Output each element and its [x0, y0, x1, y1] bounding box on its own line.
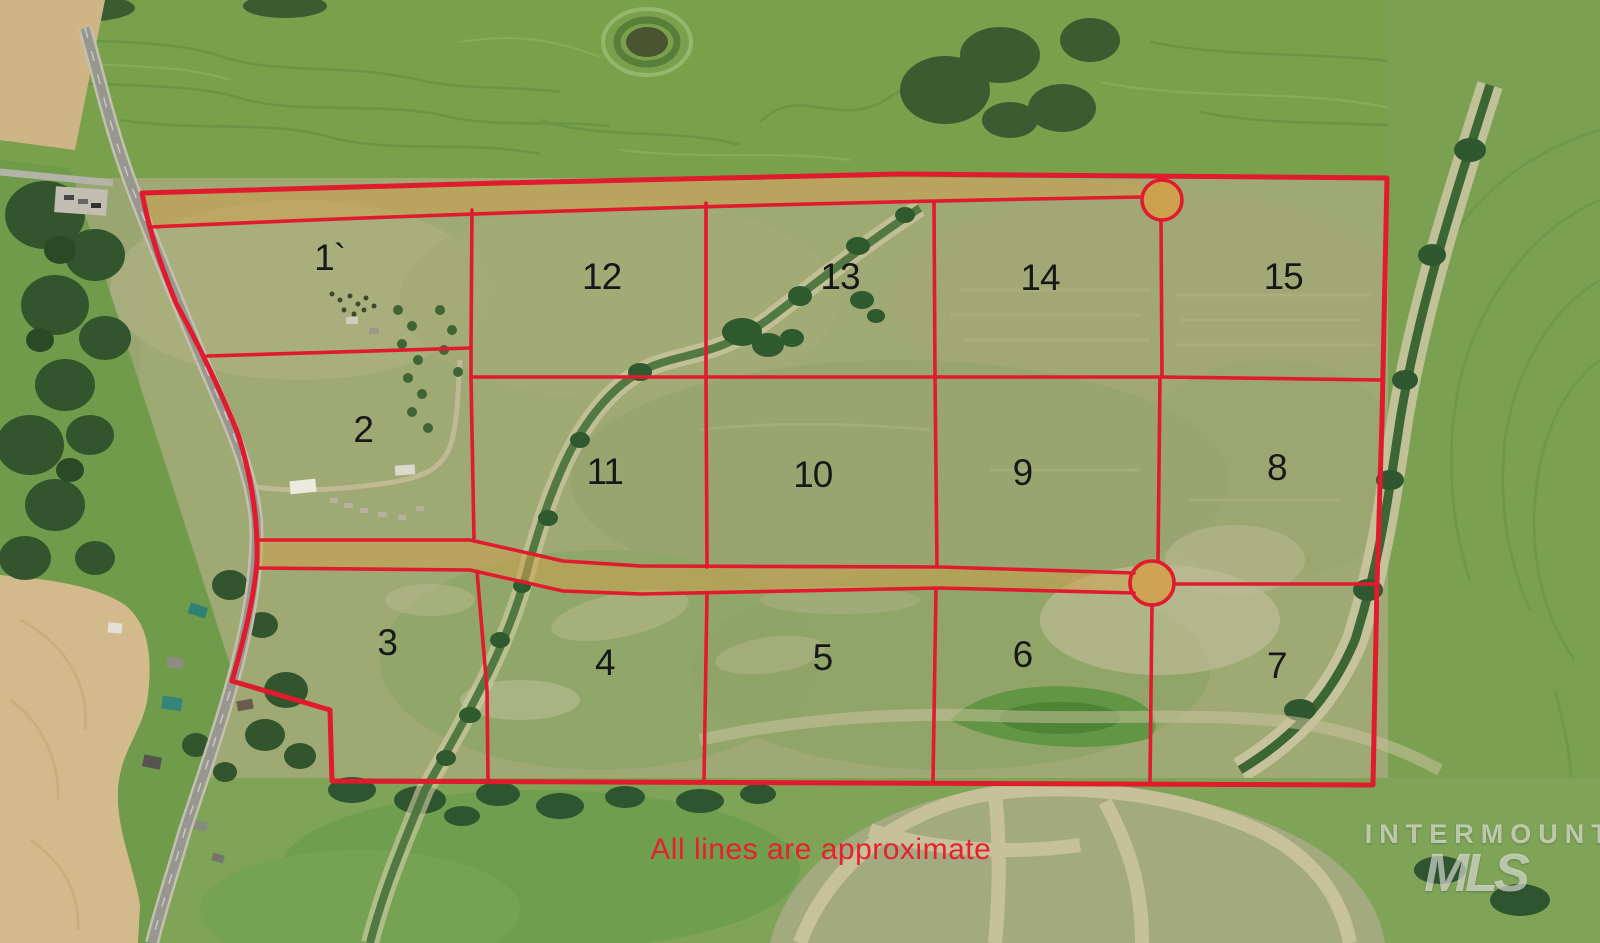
lot-label-11: 11 [587, 451, 623, 493]
lot-label-1: 1` [314, 237, 345, 279]
lot-label-9: 9 [1013, 452, 1033, 494]
lot-label-3: 3 [377, 622, 397, 664]
lot-label-13: 13 [820, 256, 859, 298]
watermark-mls: MLS [1424, 842, 1526, 904]
lot-label-2: 2 [353, 409, 373, 451]
lot-label-8: 8 [1267, 447, 1287, 489]
lot-label-14: 14 [1020, 257, 1059, 299]
lot-label-7: 7 [1267, 645, 1287, 687]
lot-label-4: 4 [595, 642, 615, 684]
aerial-parcel-map: 1`23456789101112131415 All lines are app… [0, 0, 1600, 943]
lot-label-6: 6 [1013, 634, 1033, 676]
lot-label-10: 10 [793, 454, 832, 496]
disclaimer-text: All lines are approximate [650, 833, 991, 867]
lot-label-5: 5 [813, 637, 833, 679]
lot-label-15: 15 [1264, 256, 1303, 298]
lot-label-12: 12 [582, 256, 621, 298]
